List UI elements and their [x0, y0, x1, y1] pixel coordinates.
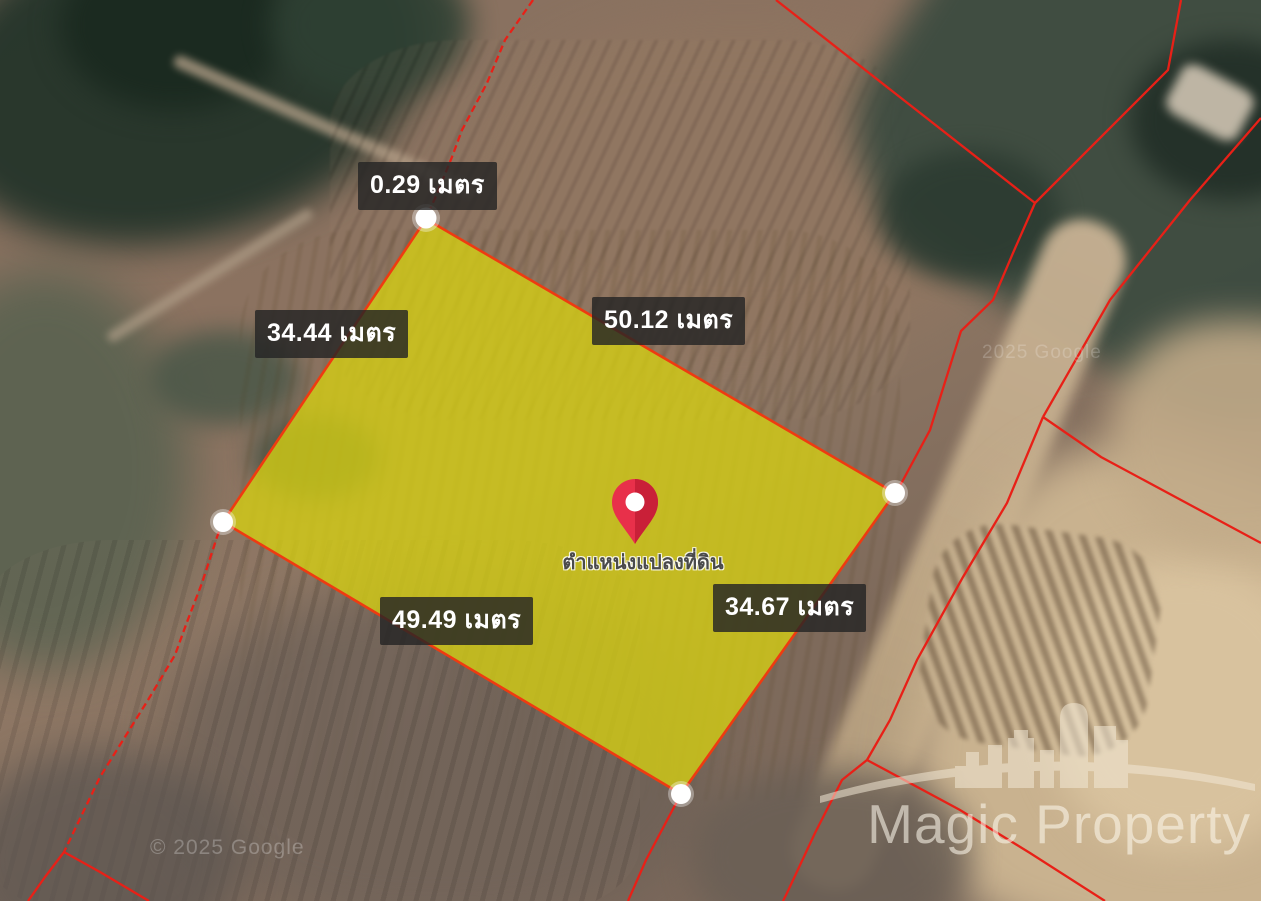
dimension-label-southeast-side: 34.67 เมตร	[713, 584, 866, 632]
cadastral-line-branch	[1043, 417, 1261, 543]
cadastral-line	[628, 794, 681, 901]
land-parcel-polygon[interactable]	[223, 219, 895, 794]
brand-watermark: Magic Property	[867, 792, 1251, 856]
dimension-label-northeast-side: 50.12 เมตร	[592, 297, 745, 345]
pin-caption: ตำแหน่งแปลงที่ดิน	[548, 546, 738, 578]
vertex-dot-south	[671, 784, 691, 804]
cadastral-line	[28, 852, 64, 901]
dimension-label-west-side: 34.44 เมตร	[255, 310, 408, 358]
cadastral-line	[776, 0, 1035, 203]
dimension-label-southwest-side: 49.49 เมตร	[380, 597, 533, 645]
cadastral-line-branch	[64, 852, 149, 901]
vertex-dot-east	[885, 483, 905, 503]
vertex-dot-west	[213, 512, 233, 532]
vertex-dot-north	[416, 208, 437, 229]
map-attribution-faint: 2025 Google	[982, 342, 1102, 364]
cadastral-line-dashed-west	[64, 522, 223, 852]
satellite-map[interactable]: 0.29 เมตร 34.44 เมตร 50.12 เมตร 49.49 เม…	[0, 0, 1261, 901]
pin-hole	[626, 493, 645, 512]
cadastral-line	[1035, 0, 1181, 203]
map-attribution: © 2025 Google	[150, 836, 305, 860]
dimension-label-north-gap: 0.29 เมตร	[358, 162, 497, 210]
